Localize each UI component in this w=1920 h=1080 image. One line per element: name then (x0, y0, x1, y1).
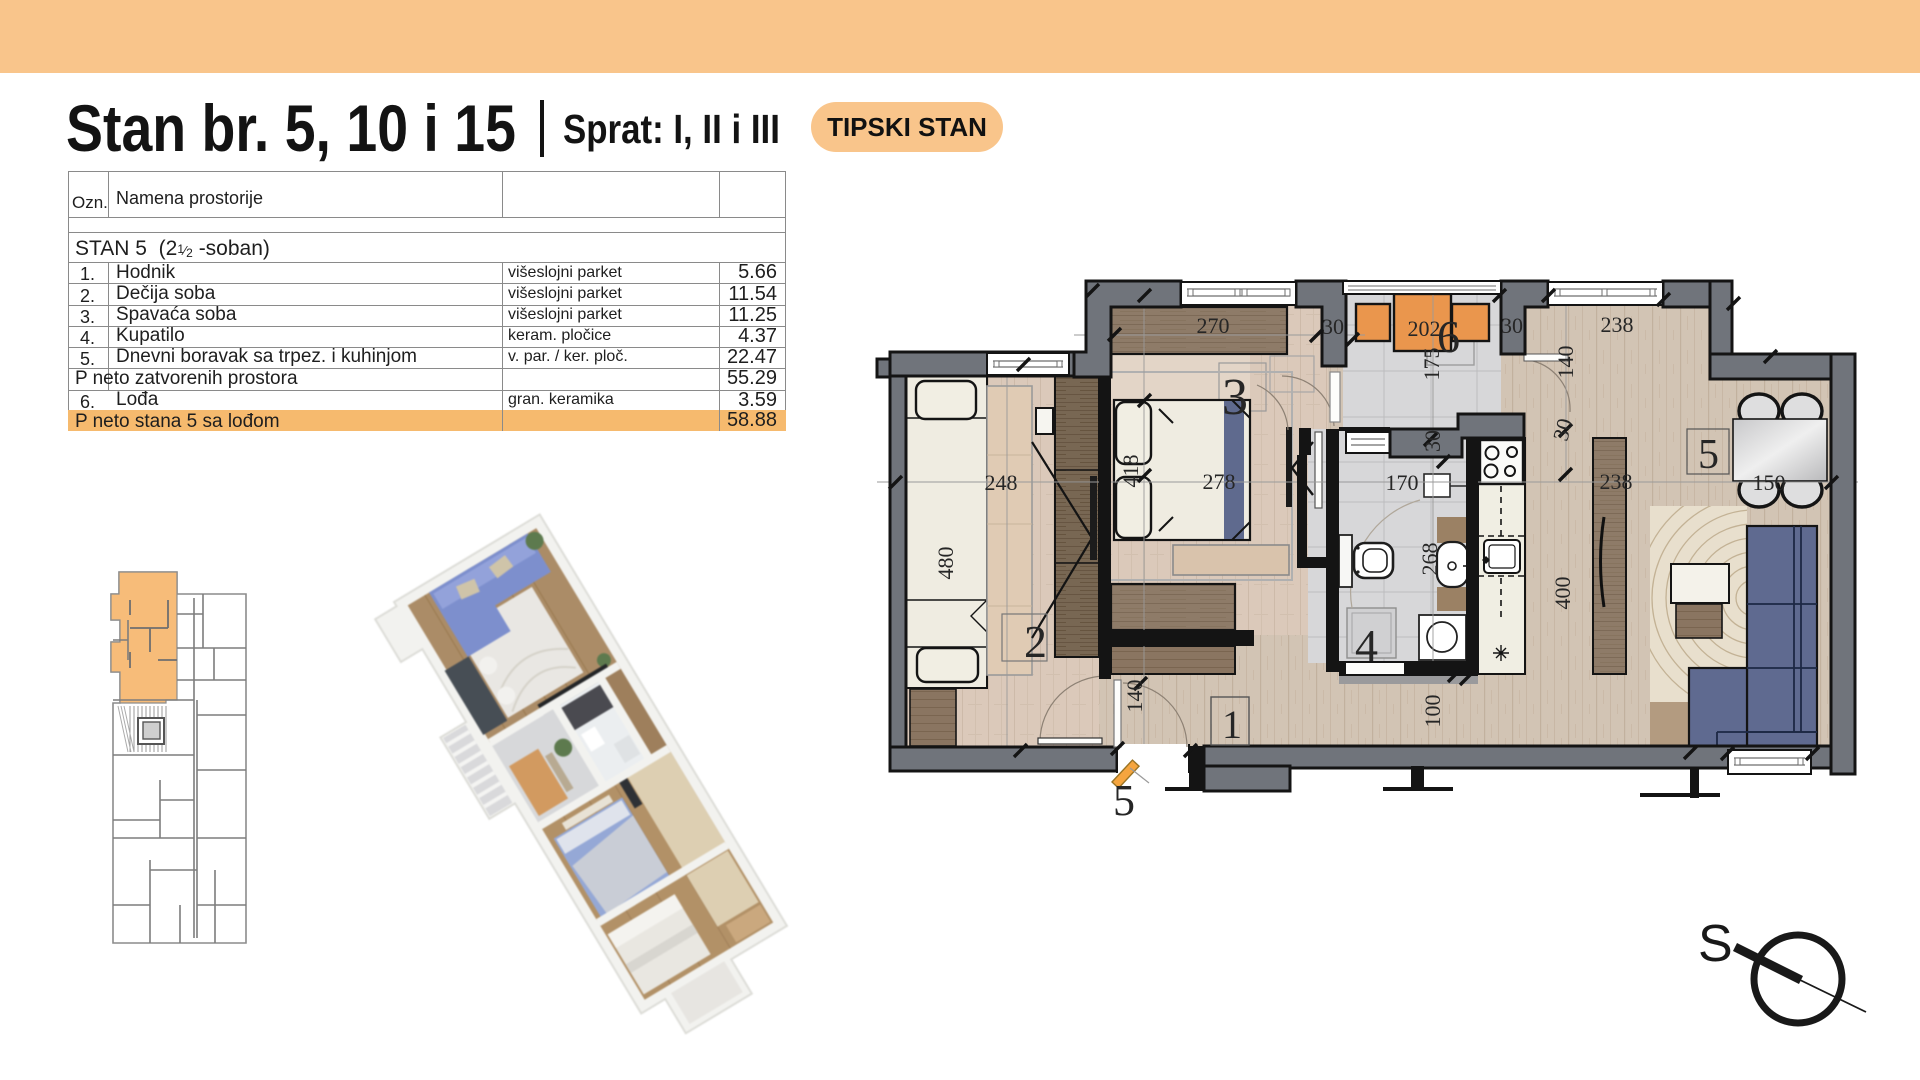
svg-text:140: 140 (1122, 680, 1147, 713)
svg-text:100: 100 (1420, 695, 1445, 728)
svg-text:3: 3 (1222, 369, 1248, 426)
svg-text:150: 150 (1753, 470, 1786, 495)
svg-text:170: 170 (1386, 470, 1419, 495)
svg-text:268: 268 (1417, 543, 1442, 576)
svg-text:480: 480 (933, 547, 958, 580)
svg-text:4: 4 (1355, 620, 1378, 671)
svg-text:248: 248 (985, 470, 1018, 495)
svg-text:2: 2 (1024, 616, 1047, 667)
svg-text:30: 30 (1501, 313, 1523, 338)
svg-text:1: 1 (1222, 702, 1242, 747)
svg-text:6: 6 (1437, 311, 1460, 362)
svg-text:5: 5 (1113, 776, 1135, 825)
svg-text:140: 140 (1553, 346, 1578, 379)
svg-text:400: 400 (1550, 577, 1575, 610)
svg-text:418: 418 (1118, 455, 1143, 488)
svg-text:30: 30 (1420, 430, 1445, 452)
svg-text:238: 238 (1601, 312, 1634, 337)
svg-text:238: 238 (1600, 469, 1633, 494)
svg-text:30: 30 (1322, 314, 1344, 339)
svg-text:5: 5 (1698, 432, 1719, 478)
svg-text:278: 278 (1203, 469, 1236, 494)
svg-text:270: 270 (1197, 313, 1230, 338)
svg-text:S: S (1698, 915, 1733, 973)
svg-text:202: 202 (1408, 316, 1441, 341)
